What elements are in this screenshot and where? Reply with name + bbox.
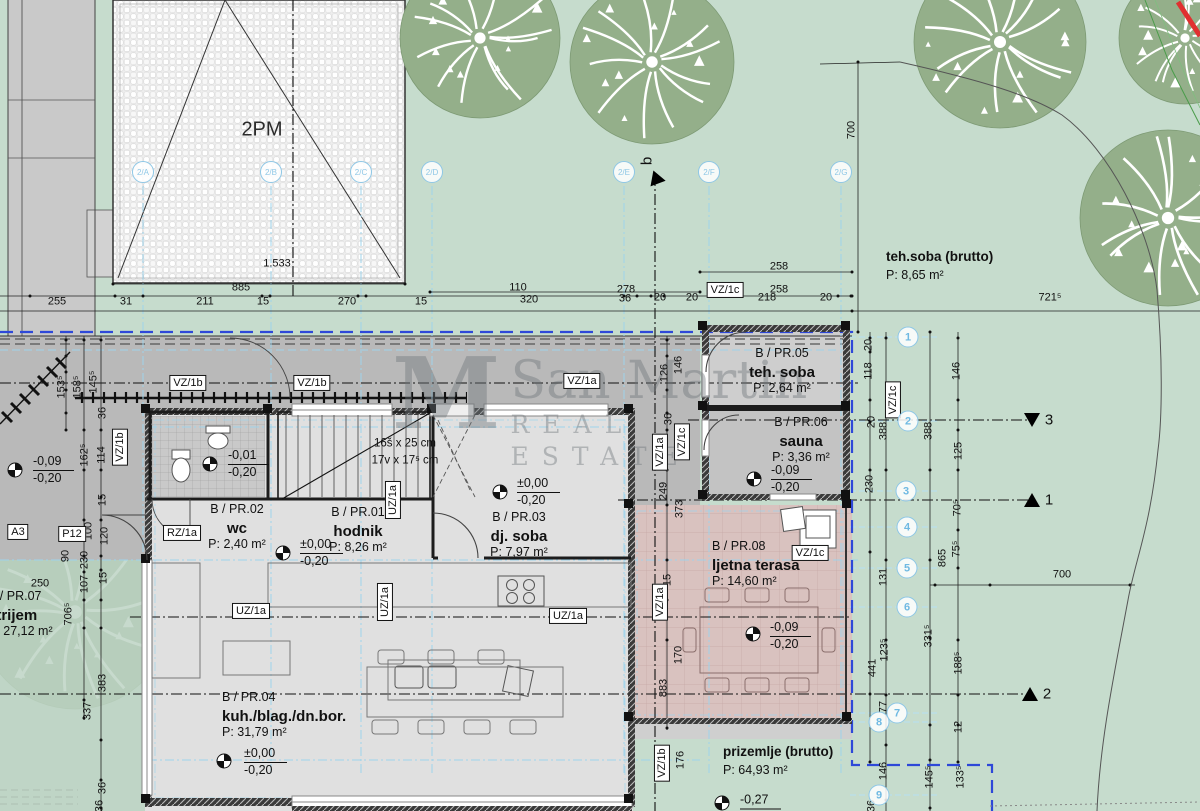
dimension-label: 721⁵ bbox=[1039, 293, 1062, 304]
dimension-label: 885 bbox=[232, 283, 250, 294]
opening-tag-p12: P12 bbox=[58, 526, 86, 542]
dimension-label: 146 bbox=[952, 362, 963, 380]
dimension-label: 700 bbox=[847, 121, 858, 139]
dimension-label: 146 bbox=[879, 762, 890, 780]
dimension-label: 176 bbox=[676, 751, 687, 769]
dimension-label: 15 bbox=[257, 297, 269, 308]
level-marker-icon bbox=[715, 796, 730, 811]
level-top: ±0,00 bbox=[517, 476, 560, 493]
axis-marker-7: 7 bbox=[887, 703, 908, 724]
dimension-label: 158⁵ bbox=[73, 376, 84, 399]
room-r-code: B / PR.03 bbox=[492, 511, 546, 524]
dimension-label: 230 bbox=[80, 551, 91, 569]
grid-marker-2-E: 2/E bbox=[613, 161, 635, 183]
room-r-name: sauna bbox=[779, 434, 822, 449]
opening-tag-vz-1a: VZ/1a bbox=[563, 373, 600, 389]
dimension-label: 1.533 bbox=[263, 259, 291, 270]
level-marker-icon bbox=[746, 627, 761, 642]
level-marker-icon bbox=[8, 463, 23, 478]
room-r-area: P: 2,40 m² bbox=[208, 538, 266, 551]
axis-marker-2: 2 bbox=[898, 411, 919, 432]
level-marker-icon bbox=[747, 472, 762, 487]
dimension-label: 75⁵ bbox=[952, 541, 963, 558]
room-r-area: P: 31,79 m² bbox=[222, 726, 287, 739]
dimension-label: 36 bbox=[98, 407, 109, 419]
axis-marker-8: 8 bbox=[869, 712, 890, 733]
dimension-label: 320 bbox=[520, 295, 538, 306]
dimension-label: 337 bbox=[83, 702, 94, 720]
level-marker-icon bbox=[203, 457, 218, 472]
level-bottom: -0,20 bbox=[771, 480, 812, 495]
section-arrow-1 bbox=[1024, 493, 1040, 507]
dimension-label: 15 bbox=[98, 494, 109, 506]
level-marker-text: ±0,00-0,20 bbox=[517, 476, 560, 508]
dimension-label: 126 bbox=[660, 364, 671, 382]
level-marker-text: ±0,00-0,20 bbox=[244, 746, 287, 778]
dimension-label: 383 bbox=[98, 674, 109, 692]
dimension-label: 331⁵ bbox=[924, 625, 935, 648]
dimension-label: 70⁵ bbox=[953, 500, 964, 517]
dimension-label: 388 bbox=[879, 422, 890, 440]
dimension-label: 153⁵ bbox=[57, 376, 68, 399]
section-label-1: 1 bbox=[1045, 492, 1053, 509]
level-marker-text: ±0,00-0,20 bbox=[300, 537, 343, 569]
axis-marker-3: 3 bbox=[896, 481, 917, 502]
opening-tag-uz-1a: UZ/1a bbox=[377, 583, 393, 621]
site-r-name: prizemlje (brutto) bbox=[723, 745, 833, 759]
section-label-2: 2 bbox=[1043, 686, 1051, 703]
stair-note-line1: 16š x 25 cm bbox=[372, 435, 439, 452]
opening-tag-vz-1b: VZ/1b bbox=[112, 428, 128, 465]
room-r-area: P: 27,12 m² bbox=[0, 625, 53, 638]
level-top: -0,09 bbox=[771, 463, 812, 480]
opening-tag-uz-1a: UZ/1a bbox=[232, 603, 270, 619]
room-r-name: ljetna terasa bbox=[712, 558, 800, 573]
opening-tag-vz-1c: VZ/1c bbox=[885, 382, 901, 419]
opening-tag-uz-1a: UZ/1a bbox=[385, 481, 401, 519]
room-r-code: B / PR.08 bbox=[712, 540, 766, 553]
plan-drawing bbox=[0, 0, 1200, 811]
dimension-label: 125 bbox=[954, 442, 965, 460]
opening-tag-a3: A3 bbox=[7, 524, 28, 540]
dimension-label: 118 bbox=[864, 362, 875, 380]
site-r-name: teh.soba (brutto) bbox=[886, 250, 993, 264]
opening-tag-vz-1a: VZ/1a bbox=[652, 433, 668, 470]
dimension-label: 36 bbox=[664, 413, 675, 425]
grid-marker-2-F: 2/F bbox=[698, 161, 720, 183]
site-r-area: P: 8,65 m² bbox=[886, 269, 944, 282]
dimension-label: 131 bbox=[879, 568, 890, 586]
room-r-area: P: 7,97 m² bbox=[490, 546, 548, 559]
dimension-label: 258 bbox=[770, 285, 788, 296]
dimension-label: 146 bbox=[674, 356, 685, 374]
opening-tag-vz-1a: VZ/1a bbox=[652, 583, 668, 620]
level-top: -0,09 bbox=[33, 454, 74, 471]
opening-tag-vz-1c: VZ/1c bbox=[674, 424, 690, 461]
level-marker-icon bbox=[276, 546, 291, 561]
dimension-label: 255 bbox=[48, 297, 66, 308]
section-label-b: b bbox=[639, 157, 656, 165]
level-top: ±0,00 bbox=[244, 746, 287, 763]
room-r-name: atrijem bbox=[0, 608, 37, 623]
dimension-label: 20 bbox=[864, 339, 875, 351]
room-r-area: P: 14,60 m² bbox=[712, 575, 777, 588]
level-bottom: -0,20 bbox=[33, 471, 74, 486]
level-marker-text: -0,09-0,20 bbox=[770, 620, 811, 652]
room-r-area: P: 2,64 m² bbox=[753, 382, 811, 395]
level-marker-icon bbox=[493, 485, 508, 500]
dimension-label: 107 bbox=[80, 575, 91, 593]
dimension-label: 15 bbox=[415, 297, 427, 308]
dimension-label: 20 bbox=[820, 293, 832, 304]
dimension-label: 278 bbox=[617, 285, 635, 296]
dimension-label: 270 bbox=[338, 297, 356, 308]
dimension-label: 133⁵ bbox=[956, 766, 967, 789]
dimension-label: 249 bbox=[659, 482, 670, 500]
grid-marker-2-G: 2/G bbox=[830, 161, 852, 183]
axis-marker-6: 6 bbox=[897, 597, 918, 618]
level-marker-icon bbox=[217, 754, 232, 769]
level-marker-text: -0,01-0,20 bbox=[228, 448, 269, 480]
opening-tag-rz-1a: RZ/1a bbox=[163, 525, 201, 541]
room-r-code: B / PR.07 bbox=[0, 590, 42, 603]
room-r-area: P: 3,36 m² bbox=[772, 451, 830, 464]
section-arrow-3 bbox=[1024, 413, 1040, 427]
grid-marker-2-C: 2/C bbox=[350, 161, 372, 183]
parking-label: 2PM bbox=[241, 119, 282, 142]
dimension-label: 36 bbox=[95, 800, 106, 811]
dimension-label: 20 bbox=[867, 416, 878, 428]
dimension-label: 20 bbox=[654, 293, 666, 304]
dimension-label: 31 bbox=[120, 297, 132, 308]
room-r-name: teh. soba bbox=[749, 365, 815, 380]
site-r-area: P: 64,93 m² bbox=[723, 764, 788, 777]
grid-marker-2-A: 2/A bbox=[132, 161, 154, 183]
level-top: ±0,00 bbox=[300, 537, 343, 554]
stair-note-line2: 17v x 17⁵ cm bbox=[372, 452, 439, 469]
axis-marker-4: 4 bbox=[897, 517, 918, 538]
dimension-label: 36 bbox=[98, 782, 109, 794]
level-bottom: -0,20 bbox=[228, 465, 269, 480]
dimension-label: 15 bbox=[99, 572, 110, 584]
dimension-label: 441 bbox=[868, 659, 879, 677]
dimension-label: 20 bbox=[686, 293, 698, 304]
dimension-label: 162⁵ bbox=[80, 444, 91, 467]
room-r-code: B / PR.01 bbox=[331, 506, 385, 519]
dimension-label: 110 bbox=[509, 283, 527, 294]
dimension-label: 123⁵ bbox=[880, 639, 891, 662]
dimension-label: 188⁵ bbox=[954, 652, 965, 675]
level-bottom: -0,20 bbox=[770, 637, 811, 652]
level-top: -0,09 bbox=[770, 620, 811, 637]
room-r-code: B / PR.04 bbox=[222, 691, 276, 704]
dimension-label: 706⁵ bbox=[64, 603, 75, 626]
room-r-code: B / PR.06 bbox=[774, 416, 828, 429]
dimension-label: 145⁵ bbox=[89, 371, 100, 394]
room-r-name: kuh./blag./dn.bor. bbox=[222, 709, 346, 724]
dimension-label: 700 bbox=[1053, 570, 1071, 581]
section-arrow-2 bbox=[1022, 687, 1038, 701]
dimension-label: 170 bbox=[674, 646, 685, 664]
opening-tag-vz-1b: VZ/1b bbox=[654, 744, 670, 781]
axis-marker-5: 5 bbox=[897, 558, 918, 579]
axis-marker-1: 1 bbox=[898, 327, 919, 348]
dimension-label: 883 bbox=[659, 679, 670, 697]
dimension-label: 865 bbox=[938, 549, 949, 567]
dimension-label: 114 bbox=[97, 446, 108, 464]
room-r-code: B / PR.05 bbox=[755, 347, 809, 360]
axis-marker-9: 9 bbox=[869, 785, 890, 806]
dimension-label: 388 bbox=[924, 422, 935, 440]
grid-marker-2-B: 2/B bbox=[260, 161, 282, 183]
stair-dimensions-note: 16š x 25 cm 17v x 17⁵ cm bbox=[372, 435, 439, 468]
opening-tag-uz-1a: UZ/1a bbox=[549, 608, 587, 624]
grid-marker-2-D: 2/D bbox=[421, 161, 443, 183]
dimension-label: 120 bbox=[100, 527, 111, 545]
dimension-label: 373 bbox=[675, 500, 686, 518]
dimension-label: 250 bbox=[31, 579, 49, 590]
level-marker-text: -0,09-0,20 bbox=[771, 463, 812, 495]
opening-tag-vz-1c: VZ/1c bbox=[707, 282, 744, 298]
level-marker-text: -0,27 bbox=[740, 793, 781, 810]
level-bottom: -0,20 bbox=[244, 763, 287, 778]
opening-tag-vz-1b: VZ/1b bbox=[293, 375, 330, 391]
dimension-label: 90 bbox=[61, 550, 72, 562]
room-r-code: B / PR.02 bbox=[210, 503, 264, 516]
level-bottom: -0,20 bbox=[300, 554, 343, 569]
level-top: -0,01 bbox=[228, 448, 269, 465]
dimension-label: 12 bbox=[954, 721, 965, 733]
level-bottom: -0,20 bbox=[517, 493, 560, 508]
room-r-name: dj. soba bbox=[491, 529, 548, 544]
room-r-name: wc bbox=[227, 521, 247, 536]
section-label-3: 3 bbox=[1045, 412, 1053, 429]
dimension-label: 230 bbox=[865, 475, 876, 493]
dimension-label: 211 bbox=[196, 297, 214, 308]
dimension-label: 258 bbox=[770, 262, 788, 273]
level-top: -0,27 bbox=[740, 793, 781, 810]
opening-tag-vz-1b: VZ/1b bbox=[169, 375, 206, 391]
level-marker-text: -0,09-0,20 bbox=[33, 454, 74, 486]
floor-plan-canvas: M San Martin REAL ESTATE 2PM 16š x 25 cm… bbox=[0, 0, 1200, 811]
dimension-label: 145⁵ bbox=[925, 766, 936, 789]
